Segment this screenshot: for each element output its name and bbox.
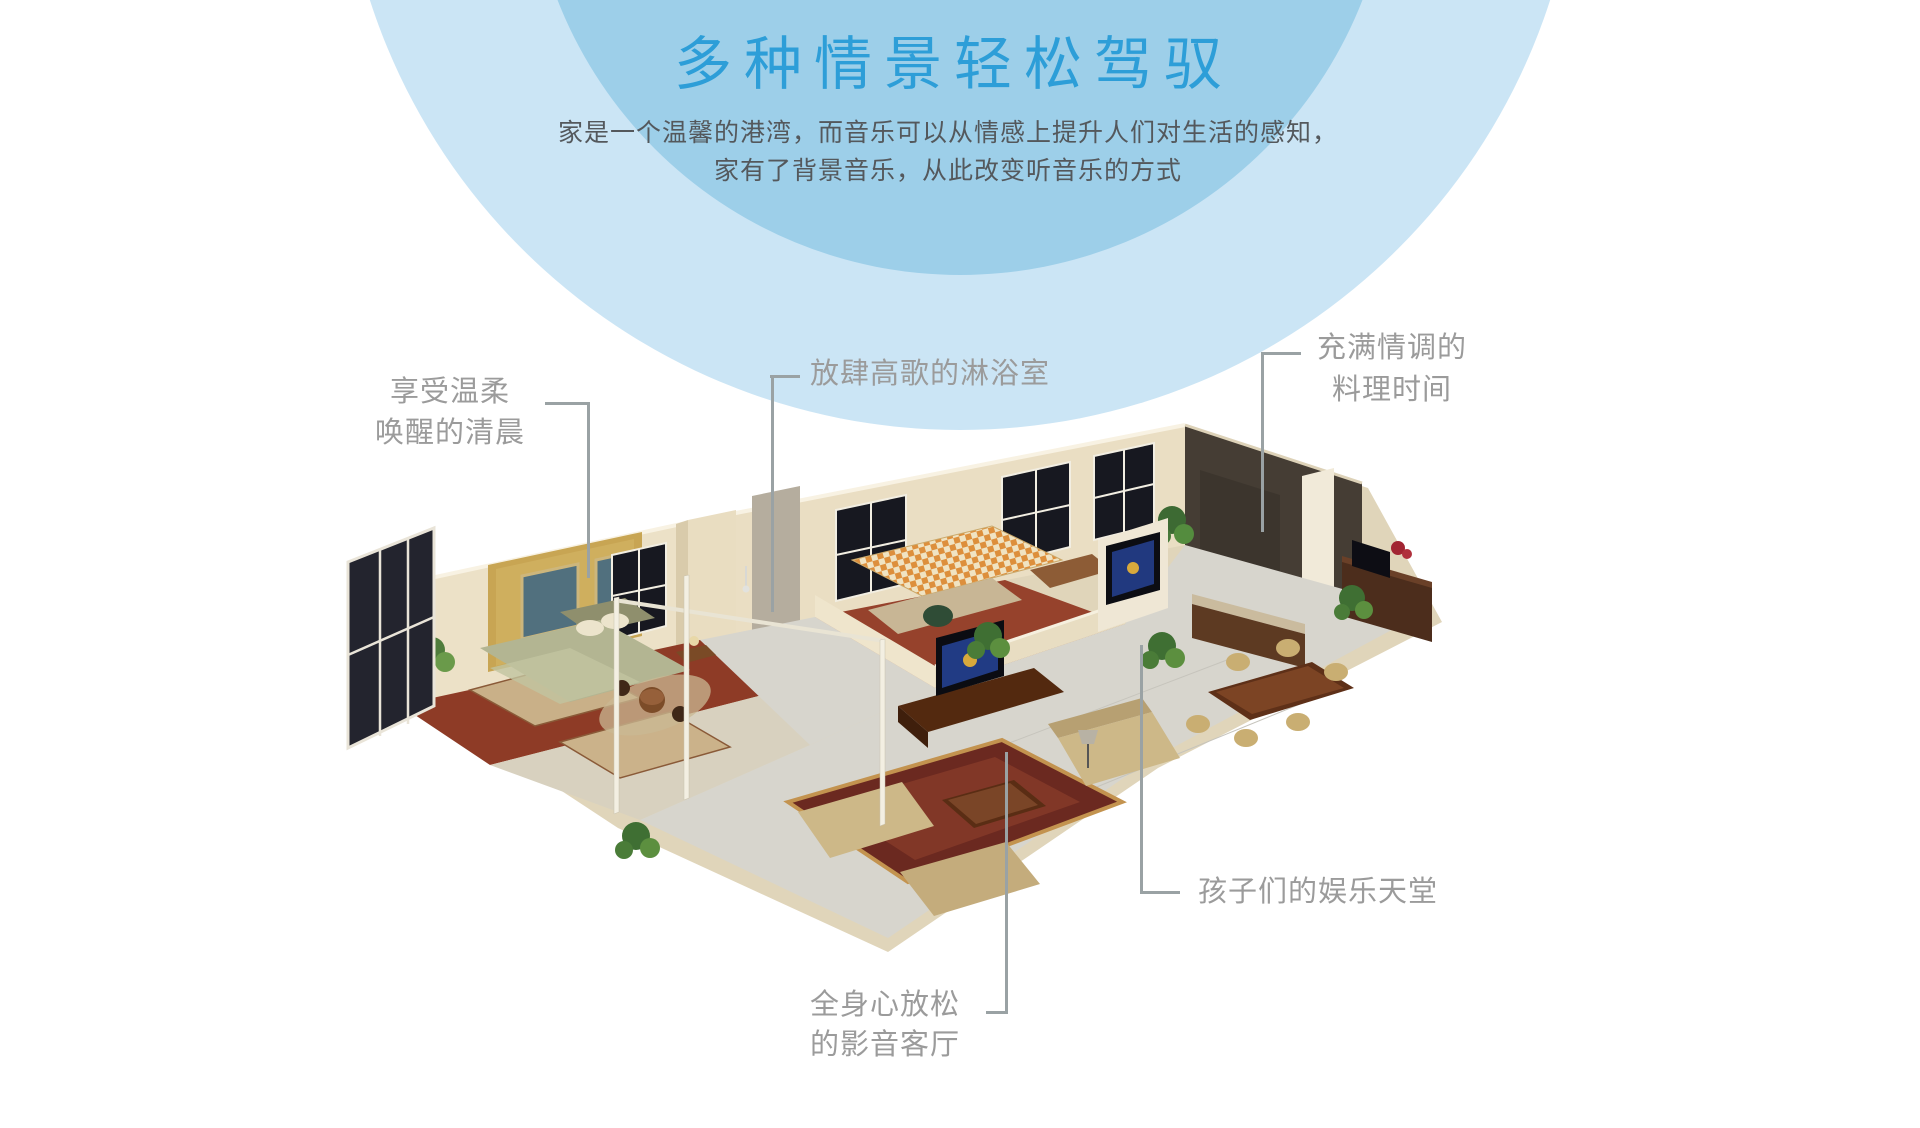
callout-line-kitchen-horizontal [1261, 352, 1301, 355]
page-title: 多种情景轻松驾驭 [0, 30, 1920, 100]
callout-kitchen-line1: 充满情调的 [1292, 327, 1492, 369]
callout-line-shower-vertical [771, 375, 774, 612]
callout-shower-room: 放肆高歌的淋浴室 [810, 359, 1050, 389]
callout-living-line2: 的影音客厅 [810, 1025, 960, 1065]
callout-living-room: 全身心放松 的影音客厅 [810, 985, 960, 1065]
callout-line-morning-vertical [587, 402, 590, 578]
callout-kitchen-line2: 料理时间 [1292, 369, 1492, 411]
callout-kids-paradise: 孩子们的娱乐天堂 [1198, 877, 1438, 907]
callout-line-kitchen-vertical [1261, 352, 1264, 532]
callout-line-shower-horizontal [770, 375, 800, 378]
callout-shower-line1: 放肆高歌的淋浴室 [810, 359, 1050, 389]
callout-line-living-horizontal [986, 1011, 1008, 1014]
callout-line-kids-horizontal [1140, 891, 1180, 894]
callout-morning-line1: 享受温柔 [320, 372, 580, 413]
shower-stone-column [752, 486, 800, 642]
section-header: 多种情景轻松驾驭 家是一个温馨的港湾，而音乐可以从情感上提升人们对生活的感知， … [0, 30, 1920, 190]
desk-chair [923, 605, 953, 627]
page-subtitle-line2: 家有了背景音乐，从此改变听音乐的方式 [0, 152, 1920, 190]
callout-morning-line2: 唤醒的清晨 [320, 413, 580, 454]
page-subtitle-line1: 家是一个温馨的港湾，而音乐可以从情感上提升人们对生活的感知， [0, 114, 1920, 152]
callout-living-line1: 全身心放松 [810, 985, 960, 1025]
bedside-lamp [689, 636, 699, 646]
callout-morning-wakeup: 享受温柔 唤醒的清晨 [320, 372, 580, 454]
callout-line-morning-horizontal [545, 402, 590, 405]
callout-kitchen-time: 充满情调的 料理时间 [1292, 327, 1492, 411]
shower-head [743, 586, 750, 593]
callout-kids-line1: 孩子们的娱乐天堂 [1198, 877, 1438, 907]
page-canvas: 多种情景轻松驾驭 家是一个温馨的港湾，而音乐可以从情感上提升人们对生活的感知， … [0, 0, 1920, 1128]
callout-line-kids-vertical [1140, 645, 1143, 894]
callout-line-living-vertical [1005, 752, 1008, 1014]
